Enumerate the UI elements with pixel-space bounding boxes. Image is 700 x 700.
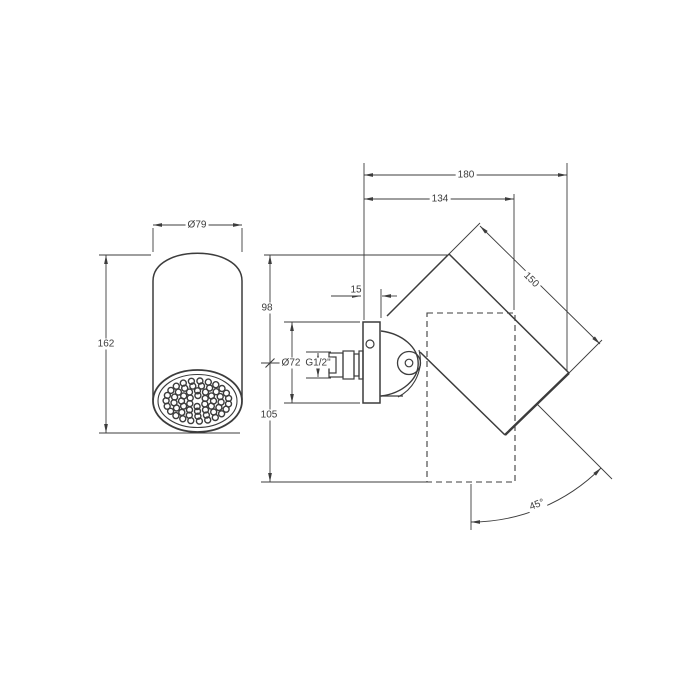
dim-heights <box>261 255 427 482</box>
nozzle-pattern <box>163 378 232 424</box>
pivot-joint-outer <box>398 352 421 375</box>
side-view <box>261 163 612 530</box>
body-rear-face-edge <box>387 254 449 316</box>
label-head-height: 162 <box>96 339 117 350</box>
label-reach-body: 134 <box>430 194 451 205</box>
screw-hole <box>366 340 374 348</box>
label-head-diameter: Ø79 <box>186 220 209 231</box>
technical-drawing-sheet: Ø79 162 180 134 150 15 98 105 Ø72 G1/2" … <box>0 0 700 700</box>
drawing-linework <box>0 0 700 700</box>
front-view <box>99 225 242 433</box>
wall-plate <box>363 322 380 403</box>
nozzle-dot <box>213 382 219 388</box>
label-plate-thickness: 15 <box>348 285 363 296</box>
pivot-joint-inner <box>405 359 413 367</box>
nozzle-dot <box>205 379 211 385</box>
dim-swivel-arc <box>471 468 601 522</box>
head-dome-outline <box>153 253 242 281</box>
shower-body-vertical-dashed <box>427 313 515 482</box>
nozzle-dot <box>208 403 214 409</box>
tilted-centerline-ext <box>537 404 612 479</box>
nozzle-dot <box>179 409 185 415</box>
fitting-ring <box>354 354 359 376</box>
nozzle-dot <box>219 411 225 417</box>
label-height-above-axis: 98 <box>259 303 274 314</box>
body-lower-edge <box>420 352 505 435</box>
label-thread-size: G1/2" <box>303 358 332 369</box>
shower-body-tilted <box>387 254 569 435</box>
label-reach-total: 180 <box>456 170 477 181</box>
nozzle-dot <box>212 415 218 421</box>
nozzle-dot <box>173 413 179 419</box>
nozzle-dot <box>216 405 222 411</box>
nozzle-dot <box>180 416 186 422</box>
label-plate-diameter: Ø72 <box>280 358 303 369</box>
fitting-collar <box>343 351 354 379</box>
label-height-below-axis: 105 <box>259 410 280 421</box>
nozzle-dot <box>175 389 181 395</box>
thread-fitting <box>329 351 363 379</box>
nozzle-dot <box>173 383 179 389</box>
dim-body-length <box>449 223 602 373</box>
nozzle-dot <box>207 385 213 391</box>
dim-reach-body <box>364 194 514 310</box>
nozzle-dot <box>168 387 174 393</box>
